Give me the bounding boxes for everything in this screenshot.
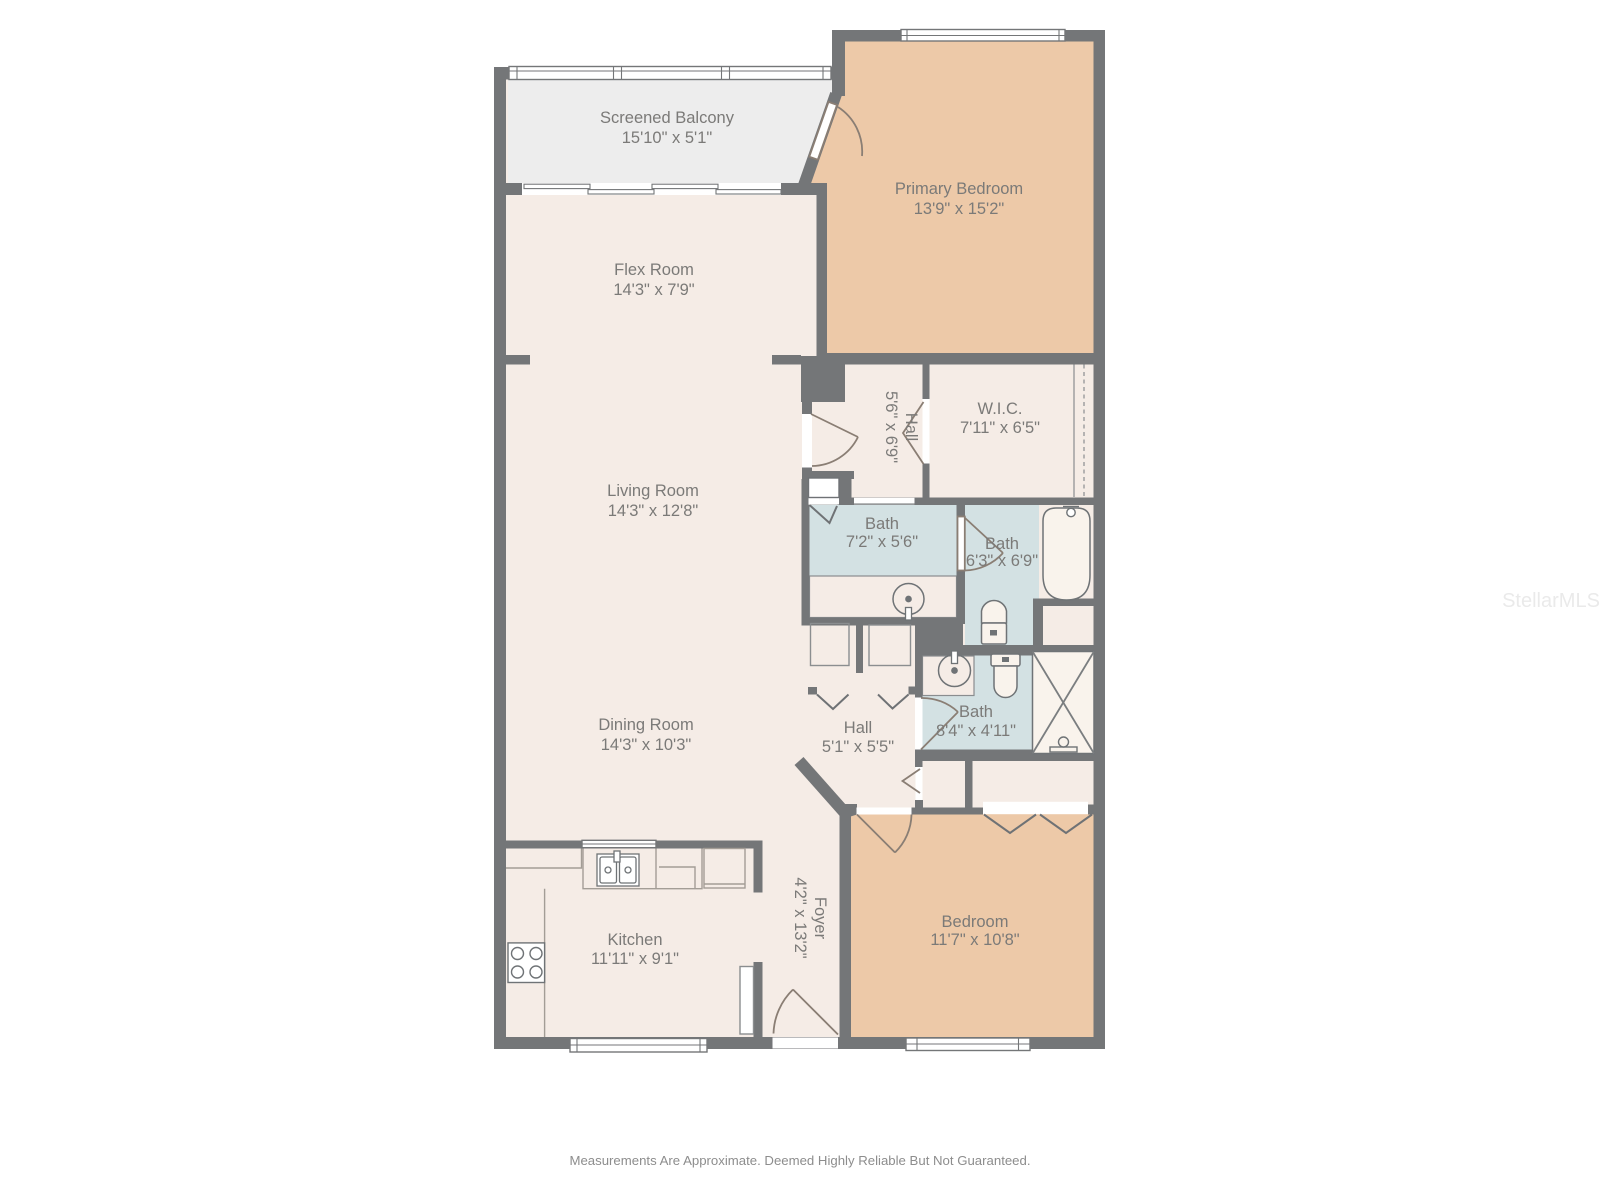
svg-text:13'9" x 15'2": 13'9" x 15'2" xyxy=(914,200,1005,218)
svg-text:Flex Room: Flex Room xyxy=(614,261,694,279)
svg-text:8'4" x 4'11": 8'4" x 4'11" xyxy=(936,722,1016,740)
svg-text:7'11" x 6'5": 7'11" x 6'5" xyxy=(960,419,1040,437)
svg-text:Kitchen: Kitchen xyxy=(607,931,662,949)
svg-text:Primary Bedroom: Primary Bedroom xyxy=(895,180,1023,198)
svg-text:Bath: Bath xyxy=(959,703,993,721)
svg-text:Foyer: Foyer xyxy=(811,897,829,940)
svg-text:11'7" x 10'8": 11'7" x 10'8" xyxy=(930,931,1019,949)
svg-text:Hall: Hall xyxy=(844,719,872,737)
svg-text:Bedroom: Bedroom xyxy=(942,913,1009,931)
svg-text:7'2" x 5'6": 7'2" x 5'6" xyxy=(846,533,918,551)
svg-text:6'3" x 6'9": 6'3" x 6'9" xyxy=(966,552,1038,570)
svg-text:14'3" x 10'3": 14'3" x 10'3" xyxy=(601,736,692,754)
svg-text:StellarMLS: StellarMLS xyxy=(1502,590,1600,612)
svg-text:15'10" x 5'1": 15'10" x 5'1" xyxy=(622,129,713,147)
svg-text:W.I.C.: W.I.C. xyxy=(978,400,1023,418)
svg-text:11'11" x 9'1": 11'11" x 9'1" xyxy=(591,950,679,968)
svg-text:5'6" x 6'9": 5'6" x 6'9" xyxy=(882,391,900,463)
svg-text:5'1" x 5'5": 5'1" x 5'5" xyxy=(822,738,894,756)
svg-text:Bath: Bath xyxy=(985,535,1019,553)
svg-text:Screened Balcony: Screened Balcony xyxy=(600,109,735,127)
svg-text:Measurements Are Approximate.: Measurements Are Approximate. Deemed Hig… xyxy=(569,1153,1030,1168)
svg-text:Bath: Bath xyxy=(865,515,899,533)
svg-text:4'2" x 13'2": 4'2" x 13'2" xyxy=(791,877,809,958)
svg-text:Living Room: Living Room xyxy=(607,482,699,500)
svg-text:Dining Room: Dining Room xyxy=(598,716,693,734)
svg-text:14'3" x 12'8": 14'3" x 12'8" xyxy=(608,502,699,520)
svg-text:14'3" x 7'9": 14'3" x 7'9" xyxy=(613,281,694,299)
svg-text:Hall: Hall xyxy=(902,413,920,441)
